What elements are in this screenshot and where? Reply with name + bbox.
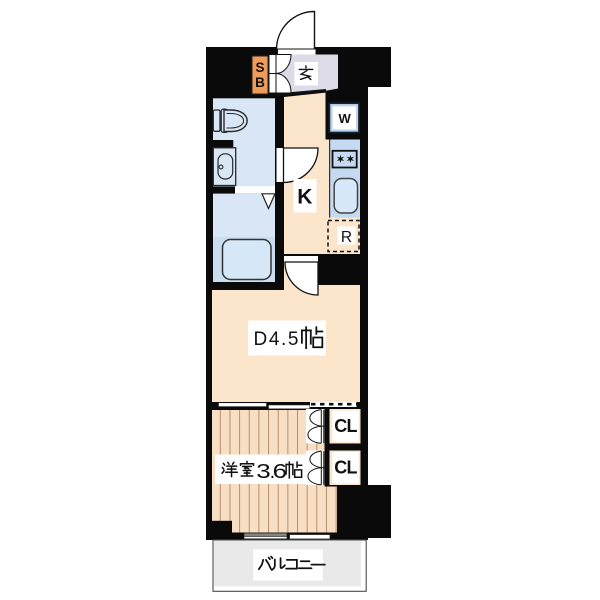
svg-text:B: B [255,75,265,90]
svg-text:3: 3 [256,460,270,482]
svg-text:CL: CL [334,416,357,436]
svg-text:W: W [338,111,351,126]
svg-text:D4.5: D4.5 [254,329,301,350]
svg-text:S: S [255,60,264,75]
svg-text:CL: CL [334,458,357,478]
svg-text:R: R [341,229,352,246]
svg-text:6: 6 [273,460,287,482]
svg-text:K: K [297,186,312,209]
